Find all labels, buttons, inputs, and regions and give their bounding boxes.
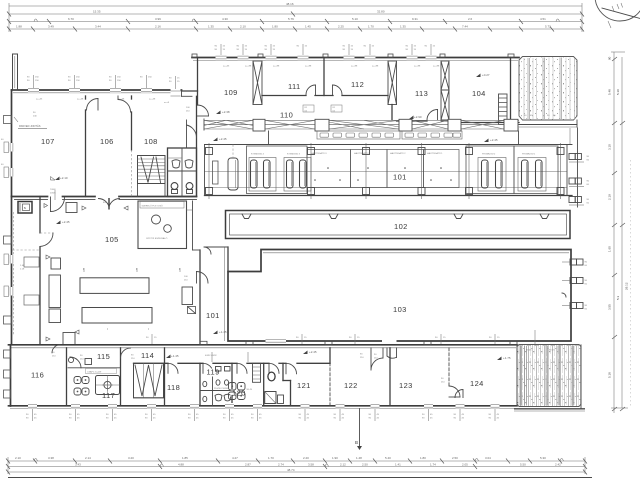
svg-text:114: 114 — [141, 351, 154, 360]
svg-text:2.50: 2.50 — [362, 463, 368, 467]
svg-text:a=+98: a=+98 — [372, 66, 379, 68]
svg-text:5.72: 5.72 — [545, 24, 551, 28]
svg-text:101: 101 — [206, 311, 220, 320]
svg-text:PADVED JONTÁS: PADVED JONTÁS — [19, 124, 41, 128]
svg-text:40/92 40/92: 40/92 40/92 — [205, 355, 217, 357]
svg-text:a=+48: a=+48 — [149, 99, 156, 101]
svg-text:ÜZÖTŐI ESPEDIÁLÓ: ÜZÖTŐI ESPEDIÁLÓ — [146, 237, 168, 240]
svg-text:123: 123 — [399, 381, 413, 390]
svg-text:3.04: 3.04 — [485, 456, 491, 460]
svg-text:+2.45: +2.45 — [490, 138, 498, 142]
svg-text:KYSMÜGÜ 3: KYSMÜGÜ 3 — [287, 153, 301, 156]
svg-text:2.20: 2.20 — [303, 456, 309, 460]
svg-text:2.12: 2.12 — [340, 463, 346, 467]
svg-text:90 45: 90 45 — [526, 350, 532, 352]
svg-text:4.88: 4.88 — [178, 463, 184, 467]
svg-text:15.35: 15.35 — [93, 10, 101, 14]
svg-text:3.49: 3.49 — [48, 24, 54, 28]
svg-text:124: 124 — [470, 379, 484, 388]
svg-text:7.44: 7.44 — [462, 24, 468, 28]
svg-text:48.16: 48.16 — [286, 2, 294, 6]
svg-text:3.43: 3.43 — [75, 463, 81, 467]
svg-text:111: 111 — [288, 82, 301, 91]
svg-text:5.3: 5.3 — [616, 295, 620, 300]
svg-text:1.80: 1.80 — [420, 456, 426, 460]
svg-text:1.90: 1.90 — [332, 456, 338, 460]
svg-text:HAUTÓGATÓ 1: HAUTÓGATÓ 1 — [427, 152, 443, 155]
svg-text:4.51: 4.51 — [540, 17, 546, 21]
svg-text:2.6: 2.6 — [468, 17, 473, 21]
svg-text:1.48: 1.48 — [356, 456, 362, 460]
svg-text:5.10: 5.10 — [616, 89, 620, 95]
svg-text:a=+45: a=+45 — [36, 99, 43, 101]
svg-text:117: 117 — [102, 391, 115, 400]
svg-text:121: 121 — [297, 381, 311, 390]
svg-text:+2.10: +2.10 — [60, 176, 68, 180]
svg-text:118: 118 — [167, 383, 180, 392]
svg-text:1.70: 1.70 — [268, 456, 274, 460]
svg-text:5.50: 5.50 — [520, 463, 526, 467]
svg-text:110: 110 — [280, 111, 293, 120]
svg-text:48.74: 48.74 — [287, 468, 295, 472]
svg-text:6.70: 6.70 — [68, 17, 74, 21]
svg-text:+1.45: +1.45 — [219, 330, 227, 334]
svg-text:70/08: 70/08 — [50, 189, 56, 191]
svg-text:2.19: 2.19 — [608, 194, 612, 200]
svg-text:a=+98: a=+98 — [351, 66, 358, 68]
svg-text:a=+98: a=+98 — [305, 66, 312, 68]
svg-text:2.16: 2.16 — [155, 24, 161, 28]
svg-text:20/06: 20/06 — [50, 192, 56, 194]
svg-text:+2.45: +2.45 — [309, 350, 317, 354]
svg-text:1.60: 1.60 — [608, 246, 612, 252]
svg-text:109: 109 — [224, 88, 238, 97]
svg-text:4.30: 4.30 — [222, 17, 228, 21]
svg-text:3.44: 3.44 — [95, 24, 101, 28]
svg-text:90 45: 90 45 — [247, 389, 253, 391]
svg-text:HAUTÓGATÓ 2: HAUTÓGATÓ 2 — [390, 152, 406, 155]
svg-text:122: 122 — [344, 381, 358, 390]
svg-text:116: 116 — [31, 371, 44, 380]
svg-text:+1.75: +1.75 — [503, 356, 511, 360]
svg-text:3.55: 3.55 — [608, 304, 612, 310]
svg-text:s: s — [24, 206, 26, 210]
svg-text:2.42: 2.42 — [555, 463, 561, 467]
svg-text:1.41: 1.41 — [395, 463, 401, 467]
svg-text:5.10: 5.10 — [352, 17, 358, 21]
svg-text:2.10: 2.10 — [15, 456, 21, 460]
svg-text:3.20: 3.20 — [128, 456, 134, 460]
svg-text:1.80: 1.80 — [272, 24, 278, 28]
svg-text:104: 104 — [472, 89, 486, 98]
svg-text:+0.27: +0.27 — [482, 73, 490, 77]
svg-text:CSAP1 m=1W: CSAP1 m=1W — [87, 370, 102, 373]
svg-text:5.40: 5.40 — [385, 456, 391, 460]
svg-text:32.80: 32.80 — [377, 10, 385, 14]
svg-text:103: 103 — [393, 305, 407, 314]
svg-text:3.99: 3.99 — [155, 17, 161, 21]
svg-text:105: 105 — [105, 235, 119, 244]
svg-text:a=+8: a=+8 — [164, 102, 170, 104]
svg-text:210/90 210/90: 210/90 210/90 — [214, 388, 229, 390]
svg-text:2.74: 2.74 — [278, 463, 284, 467]
svg-text:1.88: 1.88 — [16, 24, 22, 28]
svg-text:HYGMÜGÜ 1: HYGMÜGÜ 1 — [522, 153, 536, 156]
svg-text:108: 108 — [144, 137, 158, 146]
svg-text:115: 115 — [97, 352, 110, 361]
svg-text:HYGMÜGÜ 2: HYGMÜGÜ 2 — [482, 153, 496, 156]
svg-text:29.12: 29.12 — [625, 282, 629, 290]
svg-text:9.31: 9.31 — [412, 17, 418, 21]
svg-text:3.58: 3.58 — [308, 463, 314, 467]
svg-text:112: 112 — [351, 80, 364, 89]
svg-text:90: 90 — [608, 56, 612, 60]
svg-text:1.35: 1.35 — [208, 24, 214, 28]
svg-text:2.10: 2.10 — [240, 24, 246, 28]
svg-text:a=+98: a=+98 — [273, 66, 280, 68]
svg-text:1.74: 1.74 — [430, 463, 436, 467]
svg-text:+2.45: +2.45 — [219, 137, 227, 141]
svg-text:102: 102 — [394, 222, 408, 231]
svg-text:a=+98: a=+98 — [414, 66, 421, 68]
svg-text:+1.45: +1.45 — [171, 354, 179, 358]
svg-text:+2.38: +2.38 — [222, 110, 230, 114]
svg-text:1.35: 1.35 — [400, 24, 406, 28]
svg-text:1.70: 1.70 — [368, 24, 374, 28]
svg-text:a=+48: a=+48 — [77, 99, 84, 101]
svg-text:3.10: 3.10 — [608, 144, 612, 150]
svg-text:107: 107 — [41, 137, 55, 146]
svg-text:4.27: 4.27 — [232, 456, 238, 460]
svg-text:KYSMÜGÜ 4: KYSMÜGÜ 4 — [251, 153, 265, 156]
svg-text:119: 119 — [207, 368, 220, 377]
svg-text:a=+98: a=+98 — [245, 66, 252, 68]
svg-text:+2.90: +2.90 — [414, 115, 422, 119]
svg-text:+2.45: +2.45 — [62, 220, 70, 224]
svg-text:5.48: 5.48 — [608, 89, 612, 95]
svg-text:2.14: 2.14 — [85, 456, 91, 460]
svg-text:5.76: 5.76 — [288, 17, 294, 21]
svg-text:2.50: 2.50 — [452, 456, 458, 460]
svg-text:SZERELŐ FOLYOSÓ: SZERELŐ FOLYOSÓ — [142, 204, 164, 207]
svg-text:3.38: 3.38 — [48, 456, 54, 460]
svg-text:a=+45: a=+45 — [223, 66, 230, 68]
svg-text:B: B — [355, 440, 358, 445]
svg-text:2.25: 2.25 — [338, 24, 344, 28]
svg-text:a=+98: a=+98 — [433, 66, 440, 68]
svg-text:1.85: 1.85 — [182, 456, 188, 460]
svg-text:2.87: 2.87 — [245, 463, 251, 467]
svg-text:1.45: 1.45 — [305, 24, 311, 28]
svg-text:113: 113 — [415, 89, 428, 98]
svg-text:2.05: 2.05 — [462, 463, 468, 467]
svg-text:5.30: 5.30 — [540, 456, 546, 460]
svg-text:90 45: 90 45 — [549, 350, 555, 352]
svg-text:101: 101 — [393, 173, 407, 182]
svg-text:106: 106 — [100, 137, 114, 146]
svg-text:5.18: 5.18 — [608, 372, 612, 378]
